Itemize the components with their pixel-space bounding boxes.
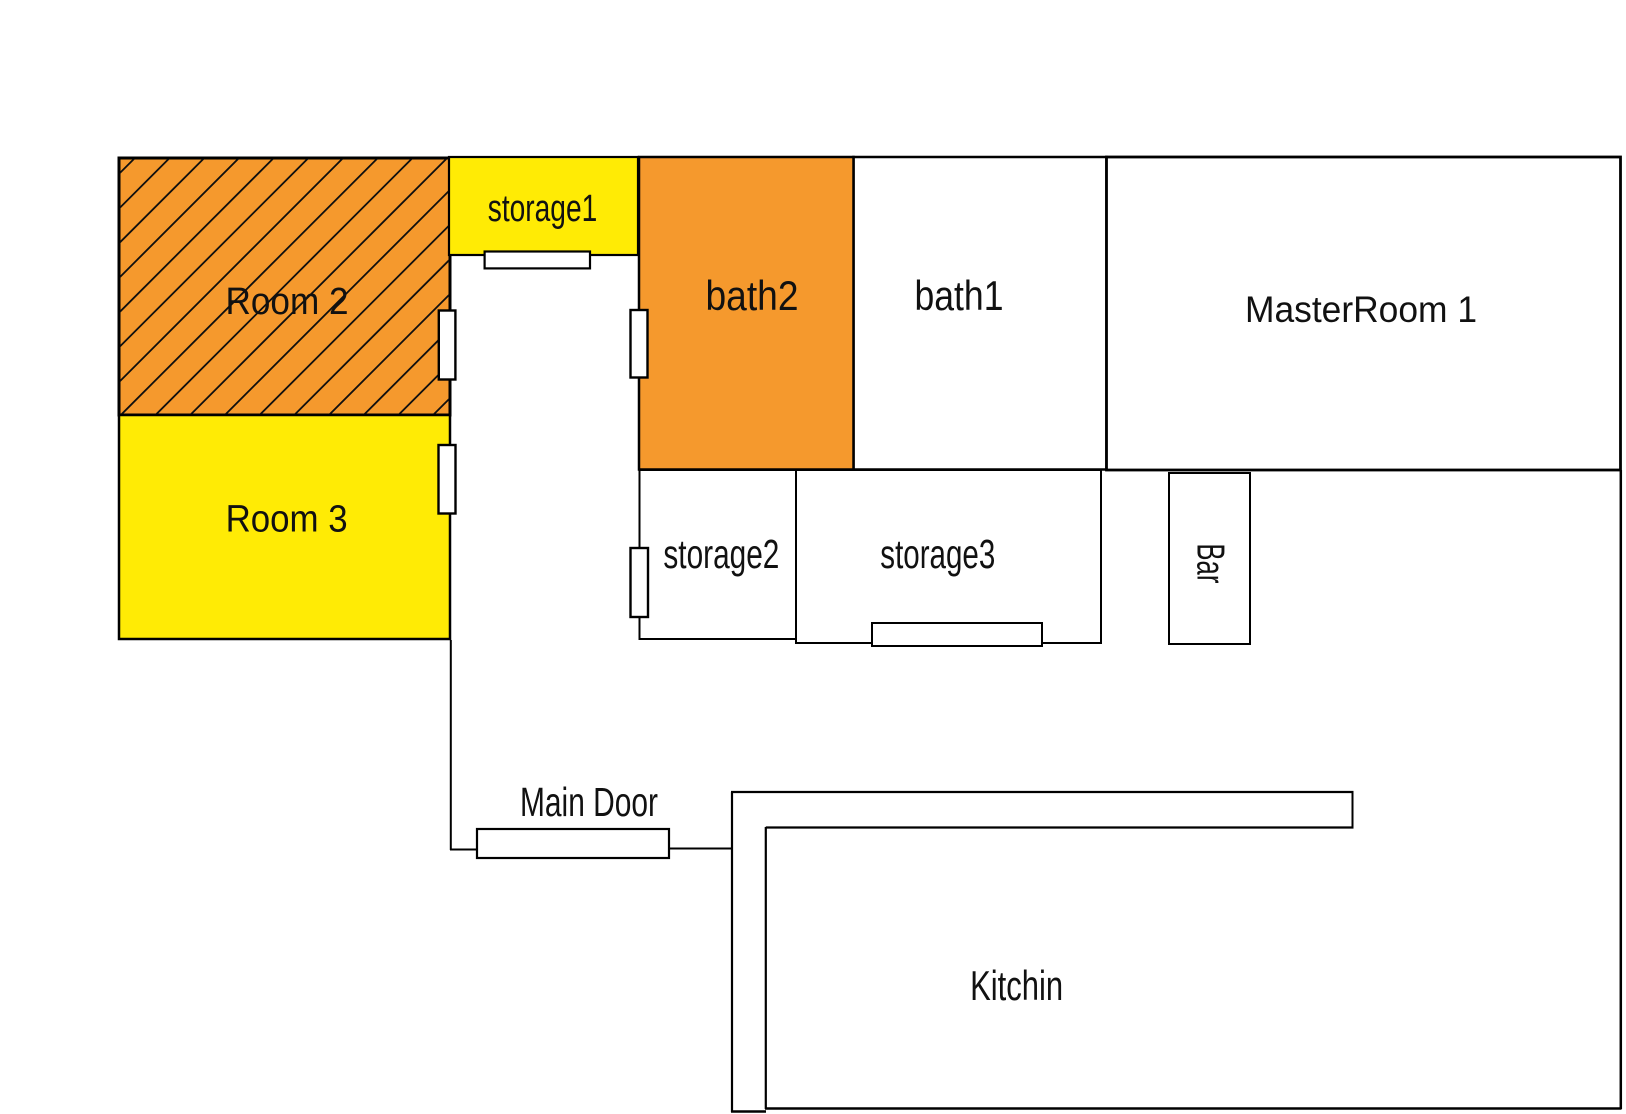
svg-text:Room 3: Room 3	[226, 498, 348, 541]
svg-text:MasterRoom 1: MasterRoom 1	[1245, 288, 1477, 330]
svg-text:bath2: bath2	[706, 272, 799, 319]
svg-text:storage2: storage2	[663, 531, 779, 577]
svg-text:Main Door: Main Door	[520, 779, 658, 825]
svg-text:storage1: storage1	[488, 187, 598, 229]
svg-text:bath1: bath1	[915, 272, 1004, 319]
svg-text:Room 2: Room 2	[226, 280, 349, 323]
svg-text:Kitchin: Kitchin	[970, 962, 1063, 1009]
svg-text:storage3: storage3	[880, 531, 995, 577]
svg-text:Bar: Bar	[1189, 543, 1232, 583]
